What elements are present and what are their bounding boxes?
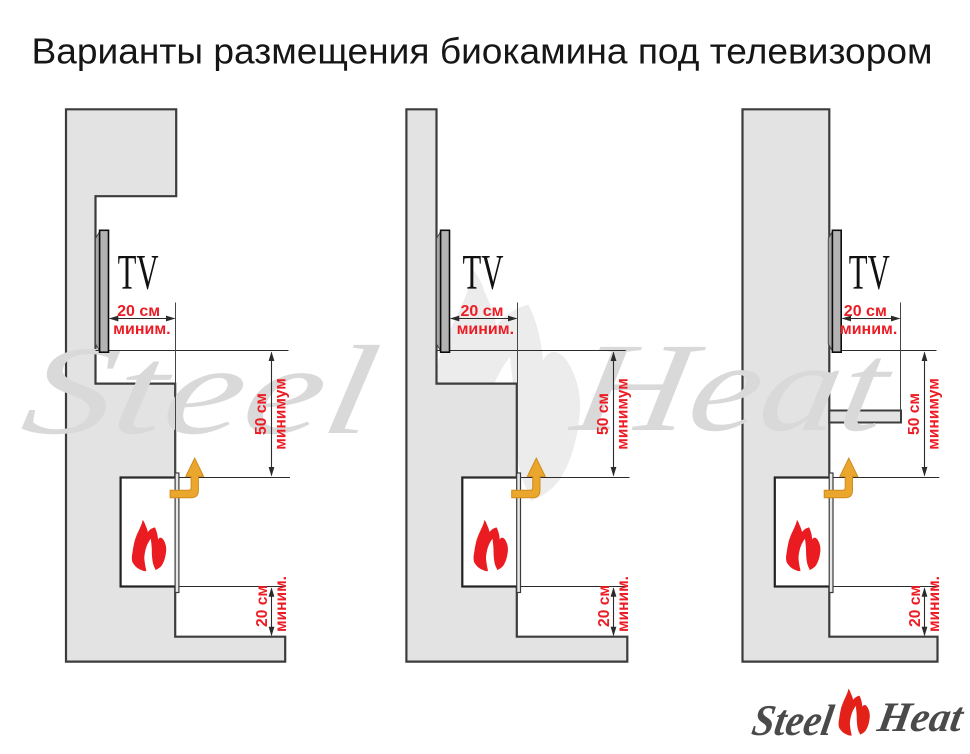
svg-text:Heat: Heat [873, 694, 967, 741]
svg-text:50 см: 50 см [253, 393, 270, 435]
svg-text:минимум: минимум [615, 378, 632, 449]
svg-text:20 см: 20 см [117, 303, 160, 320]
svg-text:Steel: Steel [749, 695, 838, 745]
svg-text:20 см: 20 см [254, 585, 271, 627]
svg-text:миним.: миним. [926, 576, 943, 632]
svg-text:минимум: минимум [273, 378, 290, 449]
svg-text:Варианты размещения биокамина: Варианты размещения биокамина под телеви… [32, 31, 933, 72]
svg-text:TV: TV [463, 244, 504, 300]
svg-text:Steel: Steel [14, 320, 389, 461]
svg-text:миним.: миним. [457, 321, 514, 338]
svg-text:миним.: миним. [113, 321, 170, 338]
svg-text:минимум: минимум [926, 378, 943, 449]
svg-text:TV: TV [118, 244, 159, 300]
svg-text:50 см: 50 см [595, 393, 612, 435]
svg-text:миним.: миним. [615, 576, 632, 632]
svg-text:20 см: 20 см [907, 585, 924, 627]
svg-text:миним.: миним. [273, 576, 290, 632]
svg-text:20 см: 20 см [596, 585, 613, 627]
svg-text:20 см: 20 см [461, 303, 504, 320]
svg-text:миним.: миним. [840, 321, 897, 338]
svg-text:TV: TV [849, 244, 890, 300]
svg-text:50 см: 50 см [906, 393, 923, 435]
